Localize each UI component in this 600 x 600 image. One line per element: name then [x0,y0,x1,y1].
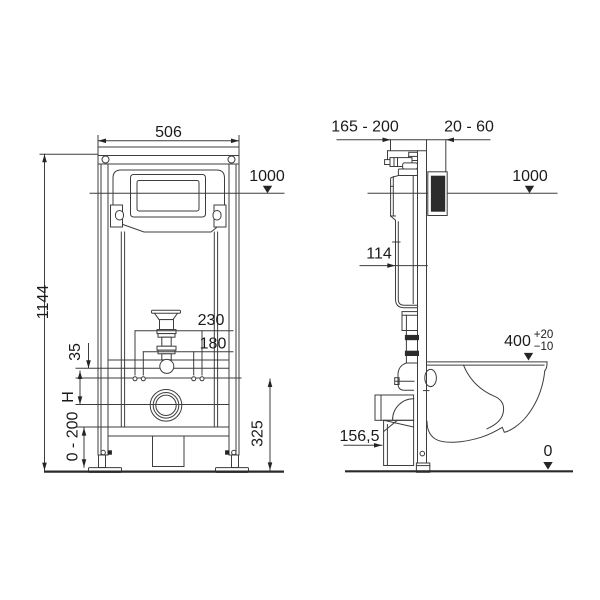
mount-hole-right [228,156,235,163]
toilet-bowl [424,362,548,442]
label-0-200: 0 - 200 [65,411,82,461]
label-level-1000-front: 1000 [249,168,285,185]
label-156-5: 156,5 [339,428,379,445]
level-marker-side [525,186,534,193]
label-230: 230 [198,312,225,329]
label-35: 35 [67,343,84,361]
label-plus-20: +20 [534,329,554,341]
label-400: 400 [504,333,531,350]
mount-hole-left [102,156,109,163]
label-height-1144: 1144 [35,285,52,320]
drain-collar [150,390,182,422]
bottom-box [153,436,185,467]
level-marker-front [263,186,272,193]
side-view [345,140,573,473]
label-minus-10: −10 [534,341,554,353]
label-165-200: 165 - 200 [331,119,399,136]
frame-left-rail [98,164,108,455]
label-0: 0 [544,443,553,460]
flush-bend [160,359,174,373]
adjustable-feet [89,450,249,472]
label-width-506: 506 [155,124,182,141]
cistern-side [391,163,418,308]
label-H: H [60,391,77,403]
drain-elbow [375,395,414,466]
dimension-labels: 506 1000 1144 230 180 35 H 0 - 200 325 1… [35,119,553,462]
flush-valve [152,310,181,373]
label-level-1000-side: 1000 [512,168,548,185]
label-180: 180 [200,336,227,353]
label-325: 325 [250,420,267,447]
technical-drawing-page: 506 1000 1144 230 180 35 H 0 - 200 325 1… [0,0,600,600]
access-panel-inner [137,181,199,212]
seat-height-marker [524,353,533,361]
installation-frame-drawing: 506 1000 1144 230 180 35 H 0 - 200 325 1… [0,0,600,600]
frame-right-rail [229,164,239,455]
floor-marker [543,462,552,470]
label-114: 114 [366,246,392,263]
label-20-60: 20 - 60 [444,119,494,136]
